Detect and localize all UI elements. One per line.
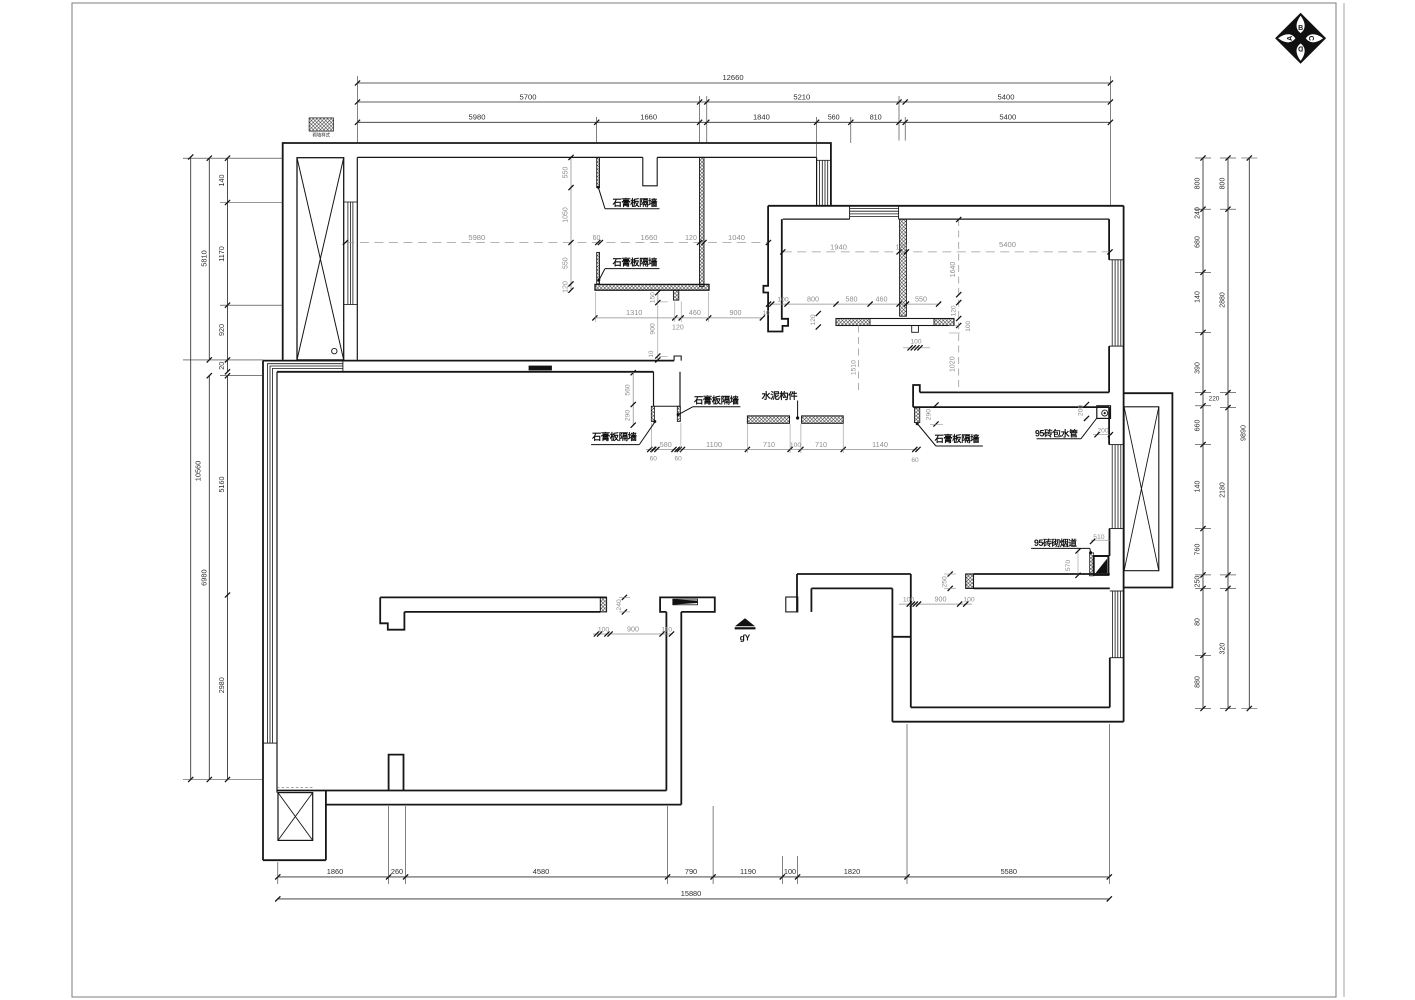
svg-text:710: 710 <box>763 440 775 449</box>
svg-text:石膏板隔墙: 石膏板隔墙 <box>693 395 740 406</box>
svg-text:2180: 2180 <box>1220 482 1227 498</box>
svg-text:110: 110 <box>662 626 673 633</box>
svg-text:800: 800 <box>1220 178 1227 190</box>
svg-text:砌墙样式: 砌墙样式 <box>313 132 331 139</box>
svg-text:D: D <box>1298 45 1303 52</box>
svg-text:200: 200 <box>1078 405 1085 417</box>
svg-text:900: 900 <box>730 308 742 317</box>
svg-text:660: 660 <box>1195 420 1202 432</box>
svg-text:120: 120 <box>896 244 908 251</box>
svg-text:石膏板隔墙: 石膏板隔墙 <box>934 433 981 444</box>
svg-text:460: 460 <box>876 294 888 303</box>
svg-text:20: 20 <box>217 362 226 370</box>
svg-text:5210: 5210 <box>793 92 810 101</box>
svg-text:95砖砌烟道: 95砖砌烟道 <box>1034 537 1077 548</box>
svg-text:6980: 6980 <box>199 569 208 585</box>
svg-text:920: 920 <box>217 324 226 336</box>
svg-text:100: 100 <box>777 296 789 303</box>
svg-text:560: 560 <box>625 384 632 396</box>
svg-text:120: 120 <box>951 305 958 316</box>
svg-text:680: 680 <box>1195 236 1202 248</box>
svg-text:15880: 15880 <box>681 889 702 898</box>
svg-text:1860: 1860 <box>327 867 343 876</box>
svg-text:550: 550 <box>563 257 570 269</box>
svg-text:ɠY: ɠY <box>740 634 751 643</box>
svg-text:5160: 5160 <box>217 477 226 493</box>
svg-text:5400: 5400 <box>998 92 1015 101</box>
svg-text:810: 810 <box>870 113 882 122</box>
svg-text:5580: 5580 <box>1001 867 1017 876</box>
svg-text:100: 100 <box>965 320 972 331</box>
svg-text:9890: 9890 <box>1238 425 1247 441</box>
svg-text:220: 220 <box>1209 396 1220 403</box>
svg-text:140: 140 <box>1195 291 1202 303</box>
svg-text:1510: 1510 <box>850 360 857 375</box>
svg-text:10: 10 <box>762 310 770 317</box>
svg-text:C: C <box>1307 36 1314 41</box>
svg-text:石膏板隔墙: 石膏板隔墙 <box>612 257 659 268</box>
svg-text:1940: 1940 <box>830 242 847 251</box>
svg-text:10: 10 <box>648 350 655 357</box>
svg-text:800: 800 <box>807 294 819 303</box>
svg-text:580: 580 <box>660 440 672 449</box>
svg-text:1020: 1020 <box>949 356 956 372</box>
svg-text:120: 120 <box>563 281 570 293</box>
svg-text:60: 60 <box>593 235 601 242</box>
svg-text:240: 240 <box>1195 207 1202 219</box>
svg-text:5980: 5980 <box>469 113 486 122</box>
svg-text:10560: 10560 <box>193 461 202 482</box>
svg-text:120: 120 <box>685 235 697 242</box>
svg-text:900: 900 <box>627 624 639 633</box>
svg-text:290: 290 <box>625 410 632 422</box>
svg-text:1310: 1310 <box>626 308 642 317</box>
svg-text:60: 60 <box>650 455 658 462</box>
svg-text:710: 710 <box>815 440 827 449</box>
svg-text:1140: 1140 <box>872 440 888 449</box>
svg-text:900: 900 <box>935 594 947 603</box>
svg-text:2880: 2880 <box>1220 292 1227 308</box>
svg-text:1040: 1040 <box>728 233 745 242</box>
svg-text:880: 880 <box>1195 676 1202 688</box>
svg-text:570: 570 <box>1065 560 1072 572</box>
svg-text:石膏板隔墙: 石膏板隔墙 <box>591 431 638 442</box>
svg-text:1050: 1050 <box>563 207 570 223</box>
svg-text:1100: 1100 <box>706 440 722 449</box>
svg-text:100: 100 <box>903 596 915 603</box>
svg-text:250: 250 <box>942 576 949 588</box>
svg-text:5810: 5810 <box>199 250 208 266</box>
svg-text:B: B <box>1298 25 1303 32</box>
svg-text:1660: 1660 <box>641 233 658 242</box>
svg-text:100: 100 <box>784 867 796 876</box>
svg-text:580: 580 <box>846 294 858 303</box>
svg-text:5400: 5400 <box>999 113 1016 122</box>
svg-text:550: 550 <box>563 167 570 179</box>
svg-text:550: 550 <box>915 294 927 303</box>
svg-text:1640: 1640 <box>950 262 957 278</box>
svg-text:100: 100 <box>963 596 975 603</box>
svg-text:100: 100 <box>910 338 921 345</box>
svg-text:260: 260 <box>391 867 403 876</box>
svg-text:900: 900 <box>650 323 657 335</box>
svg-text:5700: 5700 <box>520 92 537 101</box>
svg-text:1170: 1170 <box>217 246 226 261</box>
svg-text:1190: 1190 <box>740 867 756 876</box>
svg-text:140: 140 <box>217 175 226 187</box>
svg-text:95砖包水管: 95砖包水管 <box>1035 427 1078 438</box>
svg-text:390: 390 <box>1195 362 1202 374</box>
svg-text:800: 800 <box>1195 178 1202 190</box>
svg-text:120: 120 <box>672 324 684 331</box>
svg-text:5400: 5400 <box>999 240 1016 249</box>
svg-text:100: 100 <box>598 626 610 633</box>
svg-text:80: 80 <box>1195 618 1202 626</box>
svg-text:1660: 1660 <box>640 113 657 122</box>
svg-text:560: 560 <box>828 113 840 122</box>
svg-text:1840: 1840 <box>753 113 770 122</box>
svg-text:水泥构件: 水泥构件 <box>762 390 799 401</box>
svg-text:1820: 1820 <box>844 867 860 876</box>
svg-text:790: 790 <box>685 867 697 876</box>
svg-text:250: 250 <box>1195 576 1202 588</box>
svg-text:290: 290 <box>926 409 933 421</box>
svg-text:2980: 2980 <box>217 677 226 693</box>
svg-text:320: 320 <box>1220 643 1227 655</box>
svg-text:60: 60 <box>911 457 919 464</box>
svg-text:460: 460 <box>689 308 701 317</box>
svg-text:A: A <box>1287 36 1294 41</box>
svg-text:5980: 5980 <box>468 233 485 242</box>
svg-text:760: 760 <box>1195 544 1202 556</box>
svg-text:石膏板隔墙: 石膏板隔墙 <box>612 197 659 208</box>
svg-text:240: 240 <box>616 599 623 611</box>
svg-text:140: 140 <box>1195 481 1202 493</box>
svg-text:60: 60 <box>675 455 683 462</box>
svg-text:100: 100 <box>790 442 802 449</box>
svg-text:12660: 12660 <box>722 73 743 82</box>
svg-text:150: 150 <box>650 292 657 303</box>
svg-text:4580: 4580 <box>533 867 549 876</box>
